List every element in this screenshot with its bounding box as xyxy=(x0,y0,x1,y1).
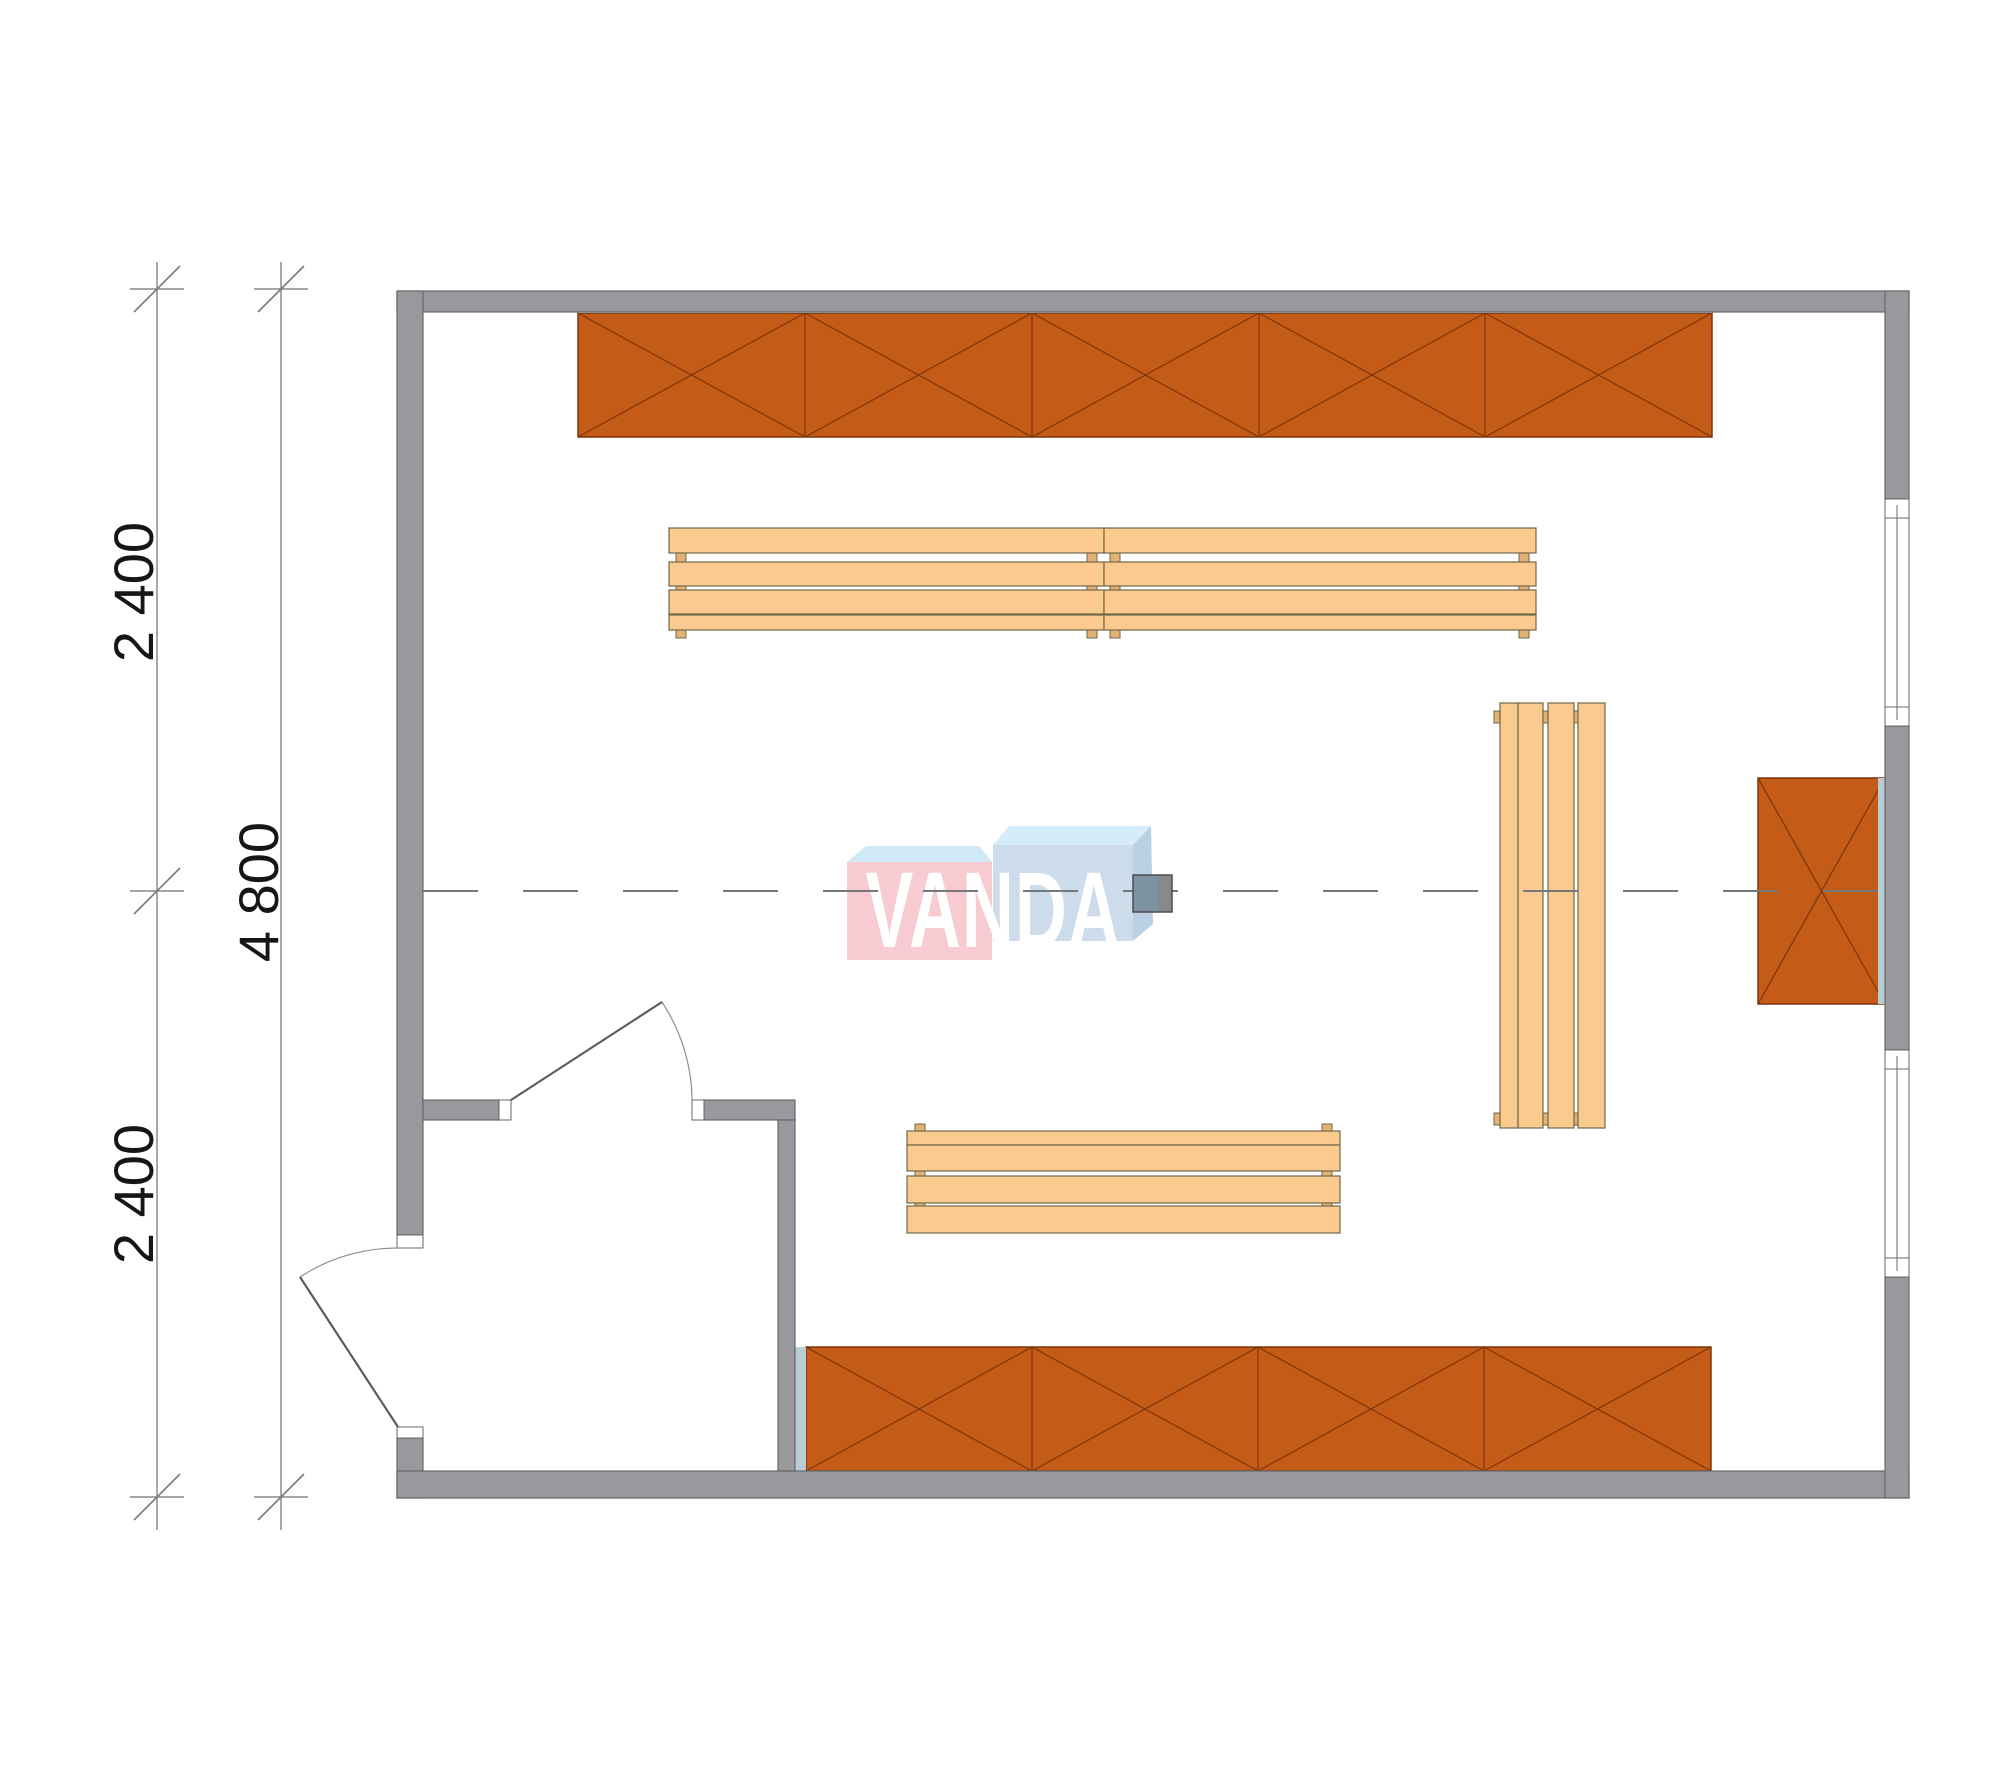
cabinet-row-bottom xyxy=(806,1347,1711,1471)
wall-bottom xyxy=(397,1471,1909,1498)
bench-slat xyxy=(1578,703,1605,1128)
dimension-label-segment-lower: 2 400 xyxy=(102,1124,165,1264)
bench-slat xyxy=(907,1145,1340,1171)
window-upper xyxy=(1885,499,1909,726)
wall-top xyxy=(397,291,1909,312)
center-post-left-half xyxy=(1133,875,1158,912)
vestibule-wall-right-segment xyxy=(704,1100,795,1120)
bench-foot xyxy=(1110,553,1120,562)
bench-slat xyxy=(907,1176,1340,1203)
watermark-text: VANDA xyxy=(865,851,1121,971)
bench-slat xyxy=(669,562,1104,586)
bench-foot xyxy=(676,553,686,562)
bench-foot xyxy=(676,630,686,638)
door-jamb xyxy=(499,1100,511,1120)
bench-foot xyxy=(1087,553,1097,562)
bench-slat xyxy=(669,528,1104,553)
bench-slat xyxy=(1104,562,1536,586)
vanda-watermark-logo: VANDA xyxy=(847,826,1153,971)
bench-bottom xyxy=(907,1124,1340,1233)
dimension-label-segment-upper: 2 400 xyxy=(102,522,165,662)
bench-slat xyxy=(669,590,1104,614)
window-lower xyxy=(1885,1050,1909,1277)
wall-accent-strip-vestibule xyxy=(795,1347,806,1471)
bench-right-vertical xyxy=(1494,703,1605,1128)
cabinet-row-top xyxy=(578,313,1712,437)
floorplan-canvas: VANDA xyxy=(0,0,2000,1786)
vestibule-wall-vertical xyxy=(778,1120,795,1471)
wall-right-lower xyxy=(1885,1277,1909,1498)
bench-foot xyxy=(1087,630,1097,638)
wall-right-middle xyxy=(1885,726,1909,1050)
bench-slat xyxy=(1548,703,1574,1128)
center-post-right-half xyxy=(1158,875,1172,912)
dimension-label-overall: 4 800 xyxy=(227,822,290,962)
bench-top-right xyxy=(1104,528,1536,638)
door-jamb xyxy=(397,1235,423,1248)
wall-right-upper xyxy=(1885,291,1909,499)
door-jamb xyxy=(692,1100,704,1120)
wall-accent-strip-right xyxy=(1878,778,1885,1004)
bench-slat xyxy=(1500,703,1518,1128)
door-jamb xyxy=(397,1427,423,1438)
vestibule-wall-left-segment xyxy=(423,1100,499,1120)
bench-foot xyxy=(1110,630,1120,638)
bench-slat xyxy=(1104,615,1536,630)
bench-slat xyxy=(907,1206,1340,1233)
center-post xyxy=(1133,875,1172,912)
logo-blue-block-top-bevel xyxy=(993,826,1151,845)
bench-top-left xyxy=(669,528,1104,638)
bench-foot xyxy=(1519,630,1529,638)
wall-left xyxy=(397,291,423,1235)
bench-slat xyxy=(1104,590,1536,614)
bench-slat xyxy=(1104,528,1536,553)
bench-slat xyxy=(1518,703,1543,1128)
bench-slat xyxy=(907,1131,1340,1145)
bench-foot xyxy=(1519,553,1529,562)
bench-slat xyxy=(669,615,1104,630)
